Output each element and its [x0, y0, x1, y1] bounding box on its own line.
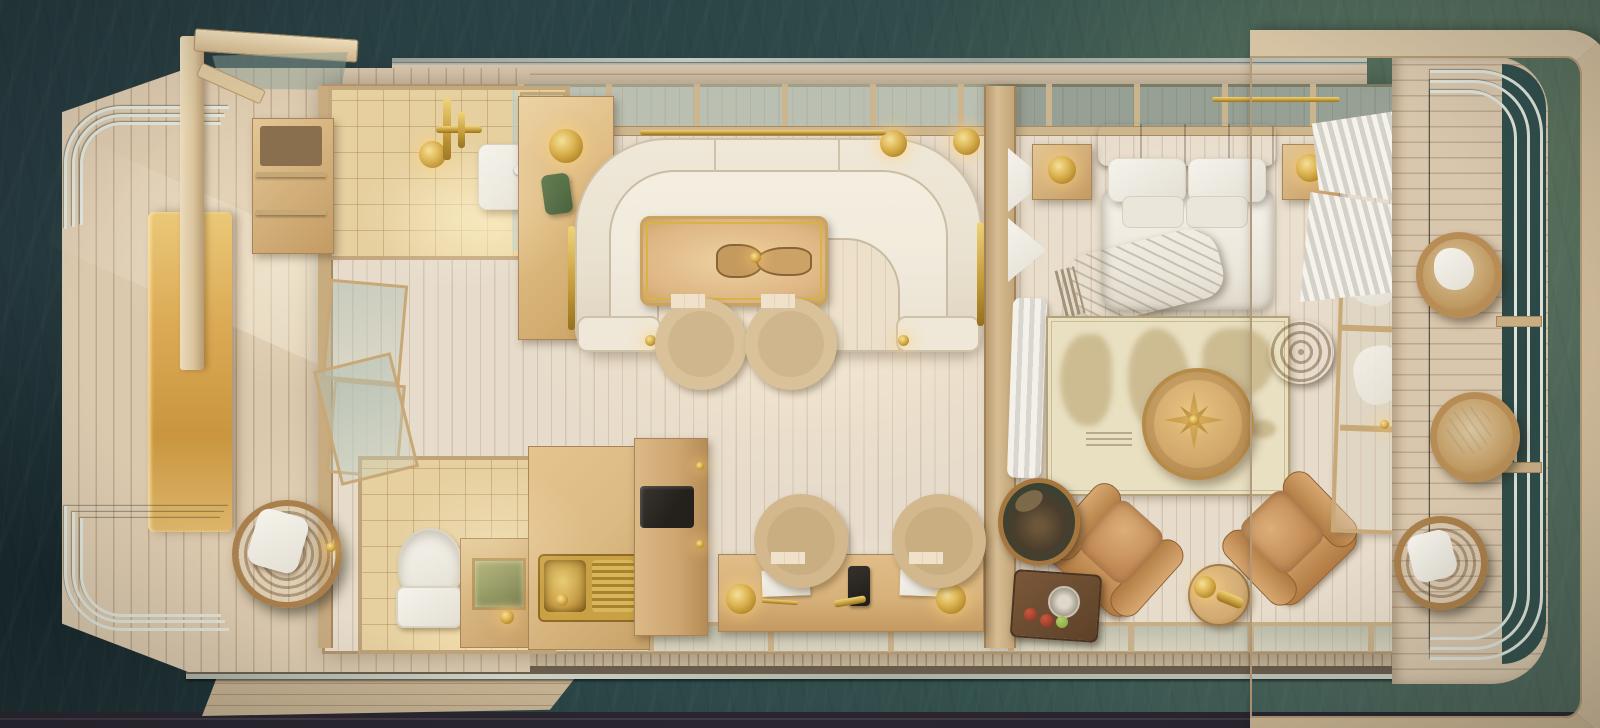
cabinet-screen [640, 486, 694, 528]
drinking-glass [1048, 586, 1080, 618]
dining-chair-right [745, 298, 837, 390]
cabinet-dome-lamp [549, 129, 583, 163]
desk-lamp-left [726, 584, 756, 614]
sofa-cushion-seam-1 [714, 140, 716, 172]
sofa-brass-cap-right [898, 335, 909, 346]
dining-chair-left [655, 298, 747, 390]
sofa-brass-rail-right [977, 222, 984, 326]
map-caption-marks [1086, 430, 1132, 446]
sink-drainboard [592, 560, 634, 612]
nightstand-lamp-left [1048, 156, 1076, 184]
table-centerpiece-right [756, 247, 812, 276]
shelf-opening [260, 126, 322, 166]
sofa-cushion-seam-2 [838, 140, 840, 172]
top-guard-rail [392, 58, 1367, 62]
bed-pillow-small-right [1186, 196, 1248, 228]
fruit-red-2 [1040, 614, 1053, 627]
sofa-arm-cap-right [896, 316, 980, 352]
bow-railing-bottom-3 [80, 518, 221, 617]
fruit-red-1 [1024, 608, 1037, 621]
vanity-faucet [500, 610, 514, 624]
vanity-mirror [472, 558, 526, 610]
desk-chair-left [754, 494, 848, 588]
shelf-board-1 [256, 172, 326, 177]
shower-head [419, 141, 446, 168]
stern-rim-frame [1250, 30, 1600, 728]
houseboat-floorplan-render [0, 0, 1600, 728]
dining-chair-right-opening [761, 294, 795, 308]
desk-lamp-right [936, 584, 966, 614]
compass-center-pin [1189, 415, 1199, 425]
cabinet-handle-bottom [696, 540, 704, 548]
divider-sconce [953, 128, 980, 155]
cabinet-handle-top [696, 462, 704, 470]
desk-chair-right-opening [909, 552, 943, 564]
toilet-tank [396, 586, 462, 628]
dining-chair-left-opening [671, 294, 705, 308]
desk-chair-right [892, 494, 986, 588]
egg-chair-swivel [326, 542, 336, 552]
divider-drape [1007, 297, 1047, 478]
stern-hanging-chair-mid-cushion [1446, 406, 1492, 454]
shower-cross-handle [458, 112, 465, 148]
shelf-board-2 [256, 210, 326, 215]
telescope-brass-eyepiece [1194, 576, 1216, 598]
salon-wall-rail [640, 130, 886, 135]
table-centerpiece-brass [750, 252, 761, 263]
sink-faucet [556, 594, 568, 606]
sofa-brass-rail-left [568, 226, 575, 330]
stern-hanging-chair-top-cushion [1434, 248, 1474, 290]
bed-pillow-small-left [1122, 196, 1184, 228]
fruit-green [1056, 616, 1068, 628]
green-towel-bag [540, 172, 573, 216]
sofa-arm-cap-left [577, 316, 661, 352]
pergola-post [180, 36, 204, 370]
map-continent-americas [1060, 334, 1112, 426]
desk-chair-left-opening [771, 552, 805, 564]
railing-connector-upper [1496, 316, 1542, 327]
